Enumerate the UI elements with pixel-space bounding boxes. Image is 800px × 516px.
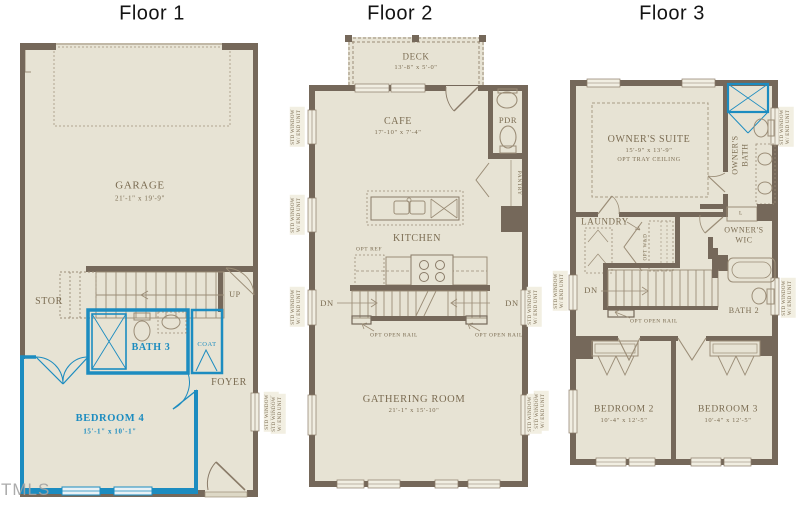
- window-tag: STD WINDOWW/ END UNIT: [271, 394, 286, 434]
- window-tag: STD WINDOWW/ END UNIT: [290, 287, 305, 327]
- cafe-dims: 17'-10" x 7'-4": [375, 130, 422, 137]
- garage-dims: 21'-1" x 19'-9": [115, 196, 165, 203]
- cafe-label: CAFE: [384, 117, 412, 127]
- bedroom2-dims: 10'-4" x 12'-5": [601, 418, 648, 425]
- linen-label: L: [739, 211, 743, 217]
- owners-bath-label: OWNER'SBATH: [730, 135, 749, 174]
- bedroom3-label: BEDROOM 3: [698, 405, 758, 415]
- gathering-label: GATHERING ROOM: [363, 395, 466, 406]
- tmls-watermark: TMLS: [1, 480, 50, 500]
- laundry-label: LAUNDRY: [581, 218, 629, 227]
- deck-label: DECK: [403, 53, 430, 62]
- foyer-label: FOYER: [211, 378, 247, 388]
- owners-suite-dims: 15'-9" x 13'-9": [626, 148, 673, 155]
- bath3-label: BATH 3: [132, 343, 171, 353]
- opt-ref-label: OPT REF: [356, 247, 382, 253]
- window-tag: STD WINDOWW/ END UNIT: [534, 391, 549, 431]
- window-tag: STD WINDOWW/ END UNIT: [553, 271, 568, 311]
- floorplan-page: Floor 1 Floor 2 Floor 3 GARAGE 21'-1" x …: [0, 0, 800, 516]
- opt-open-rail-floor3: OPT OPEN RAIL: [630, 319, 678, 325]
- floor2-title: Floor 2: [367, 3, 433, 26]
- floor1-plan: [20, 43, 259, 497]
- floor1-title: Floor 1: [119, 3, 185, 26]
- dn-label-left: DN: [320, 299, 333, 308]
- bedroom4-label: BEDROOM 4: [76, 414, 145, 425]
- window-tag: STD WINDOWW/ END UNIT: [781, 278, 796, 318]
- bedroom3-dims: 10'-4" x 12'-5": [705, 418, 752, 425]
- coat-label: COAT: [197, 342, 216, 349]
- garage-label: GARAGE: [115, 181, 164, 192]
- window-tag: STD WINDOWW/ END UNIT: [527, 287, 542, 327]
- deck-dims: 13'-8" x 5'-0": [394, 65, 437, 72]
- owners-suite-label: OWNER'S SUITE: [608, 135, 691, 145]
- floor2-plan: [308, 35, 529, 488]
- gathering-dims: 21'-1" x 15'-10": [389, 408, 440, 415]
- bath2-label: BATH 2: [729, 307, 760, 315]
- owners-wic-label: OWNER'SWIC: [724, 226, 763, 247]
- floor3-title: Floor 3: [639, 3, 705, 26]
- dn-label-floor3: DN: [584, 286, 597, 295]
- window-tag: STD WINDOWW/ END UNIT: [779, 107, 794, 147]
- stove-icon: [411, 255, 453, 286]
- opt-wd-label: OPT W&D: [644, 234, 649, 261]
- bedroom4-dims: 15'-1" x 10'-1": [83, 429, 136, 436]
- dn-label-right: DN: [505, 299, 518, 308]
- owners-suite-note: OPT TRAY CEILING: [617, 157, 680, 163]
- floorplan-graphics: [0, 0, 800, 516]
- pantry-label: PANTRY: [515, 171, 521, 196]
- window-tag: STD WINDOWW/ END UNIT: [290, 195, 305, 235]
- window-tag: STD WINDOWW/ END UNIT: [290, 107, 305, 147]
- up-label: UP: [229, 291, 240, 299]
- stor-label: STOR: [35, 297, 63, 307]
- bedroom2-label: BEDROOM 2: [594, 405, 654, 415]
- kitchen-label: KITCHEN: [393, 234, 441, 244]
- opt-open-rail-right: OPT OPEN RAIL: [475, 333, 523, 339]
- pdr-label: PDR: [499, 116, 517, 125]
- opt-open-rail-left: OPT OPEN RAIL: [370, 333, 418, 339]
